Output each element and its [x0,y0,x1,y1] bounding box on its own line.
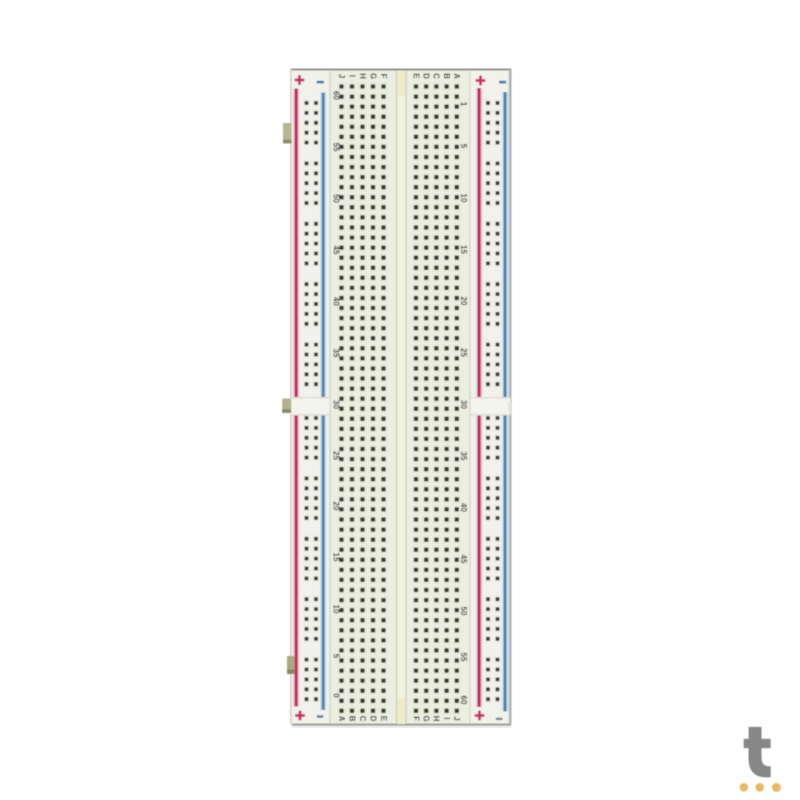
svg-text:20: 20 [459,297,468,306]
svg-text:40: 40 [332,297,341,306]
svg-text:60: 60 [459,696,468,705]
svg-text:5: 5 [332,654,341,659]
svg-text:15: 15 [459,245,468,254]
svg-text:1: 1 [459,102,468,107]
svg-text:D: D [421,73,430,79]
svg-text:C: C [432,73,441,79]
svg-text:A: A [452,73,461,79]
svg-text:25: 25 [332,451,341,460]
svg-text:50: 50 [459,607,468,616]
svg-text:G: G [421,715,430,721]
svg-text:30: 30 [459,400,468,409]
svg-text:5: 5 [459,144,468,149]
svg-text:0: 0 [332,693,341,698]
svg-text:55: 55 [332,143,341,152]
svg-text:H: H [358,73,367,79]
svg-text:15: 15 [332,553,341,562]
svg-text:I: I [442,717,451,719]
svg-text:B: B [442,73,451,79]
svg-text:H: H [432,716,441,722]
svg-text:I: I [347,75,356,77]
svg-text:45: 45 [332,246,341,255]
svg-text:E: E [379,716,388,721]
svg-text:J: J [337,74,346,78]
svg-text:35: 35 [332,349,341,358]
svg-text:A: A [337,716,346,722]
svg-text:J: J [452,716,461,720]
svg-text:E: E [411,73,420,78]
svg-text:B: B [347,716,356,722]
svg-text:50: 50 [332,194,341,203]
svg-text:25: 25 [459,348,468,357]
svg-text:D: D [368,716,377,722]
svg-text:20: 20 [332,502,341,511]
svg-text:60: 60 [332,91,341,100]
svg-text:F: F [379,74,388,79]
svg-text:10: 10 [332,605,341,614]
svg-text:10: 10 [459,194,468,203]
svg-text:40: 40 [459,503,468,512]
svg-text:35: 35 [459,452,468,461]
svg-text:55: 55 [459,653,468,662]
svg-text:G: G [368,73,377,79]
svg-text:F: F [411,716,420,721]
svg-text:C: C [358,716,367,722]
svg-text:45: 45 [459,555,468,564]
svg-text:30: 30 [332,400,341,409]
